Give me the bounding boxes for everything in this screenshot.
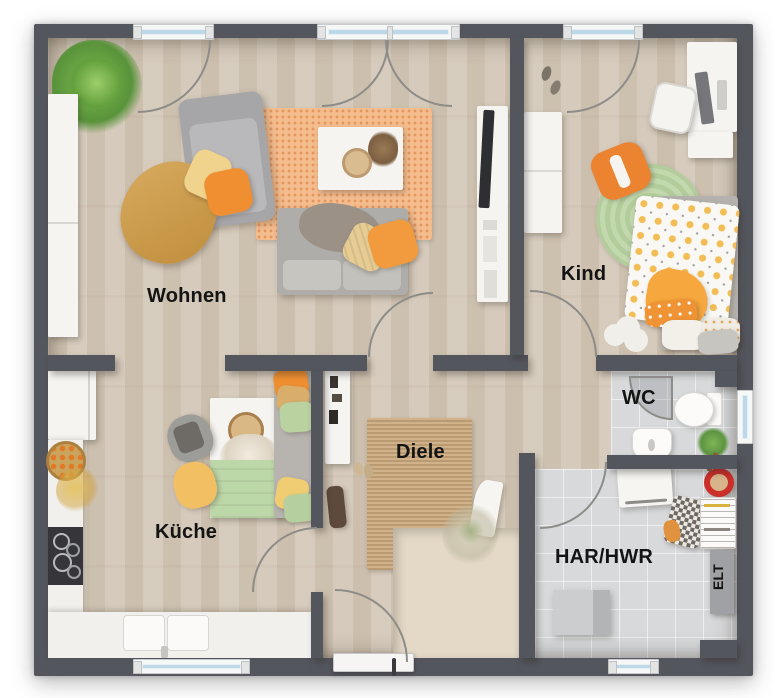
window-har [608, 659, 659, 674]
toilet-bowl [674, 392, 714, 427]
tv [478, 110, 494, 208]
cloud-rug [604, 316, 648, 354]
table-plant [368, 130, 398, 168]
red-basket [704, 468, 734, 497]
wall-diele-har [519, 453, 535, 658]
wardrobe-divider [524, 170, 562, 172]
washing-machine [617, 464, 674, 508]
wall-kueche-diele-upper [311, 371, 323, 528]
kitchen-counter-bottom [48, 612, 312, 658]
wall-center-right [433, 355, 528, 371]
hall-console [325, 368, 350, 464]
har-box [553, 590, 610, 635]
desk-return [688, 132, 733, 158]
window-wohnen-1 [133, 24, 214, 40]
room-label-elt: ELT [710, 553, 726, 601]
building-outline: Wohnen Kind Küche Diele WC HAR/HWR ELT [34, 24, 753, 676]
window-kueche [133, 659, 250, 674]
coffee-table [318, 127, 403, 190]
tv-decor-1 [483, 220, 497, 230]
faucet [161, 646, 168, 658]
room-label-diele: Diele [396, 441, 445, 464]
table-bowl [342, 148, 372, 178]
storage-shelf [700, 497, 736, 549]
living-shelf [48, 94, 78, 337]
wall-pillar-wc [715, 371, 737, 387]
desk [687, 42, 737, 132]
room-label-kind: Kind [561, 263, 606, 286]
tv-decor-3 [484, 270, 497, 298]
tv-board [477, 106, 508, 302]
wall-kueche-wohnen [48, 355, 115, 371]
wall-wohnen-kind [510, 38, 524, 355]
cooktop [48, 527, 83, 585]
keyboard [717, 80, 727, 110]
room-label-wohnen: Wohnen [147, 285, 227, 308]
entrance-door [333, 653, 414, 672]
sofa-cushion-left [283, 260, 341, 290]
tv-decor-2 [483, 236, 497, 262]
shelf-divider [48, 222, 78, 224]
window-terrace-door [317, 24, 460, 40]
wall-wc-har [607, 455, 737, 469]
stair-plant-green [458, 518, 484, 544]
wall-center-left [225, 355, 367, 371]
table-runner [210, 460, 282, 518]
doll [608, 153, 632, 189]
window-wc [737, 390, 753, 444]
door-handle [392, 658, 396, 676]
wall-block-har [700, 640, 737, 658]
wall-kueche-diele-lower [311, 592, 323, 658]
fridge [48, 370, 96, 440]
floor-plan: Wohnen Kind Küche Diele WC HAR/HWR ELT [0, 0, 775, 698]
terrace-door-mullion [387, 26, 393, 40]
bed-pillow-gray [697, 328, 739, 355]
room-label-wc: WC [622, 387, 656, 410]
flower-decor [56, 468, 98, 512]
room-label-kueche: Küche [155, 521, 217, 544]
fridge-handle-line [88, 370, 90, 440]
sink-basin-right [167, 615, 209, 651]
wardrobe [524, 112, 562, 233]
monitor [694, 71, 714, 124]
bench-pillow-green [279, 401, 315, 433]
window-kind [563, 24, 643, 40]
sink-basin-left [123, 615, 165, 651]
dining-table [210, 398, 282, 518]
room-label-har-hwr: HAR/HWR [555, 546, 653, 569]
wall-kind-wc [596, 355, 737, 371]
